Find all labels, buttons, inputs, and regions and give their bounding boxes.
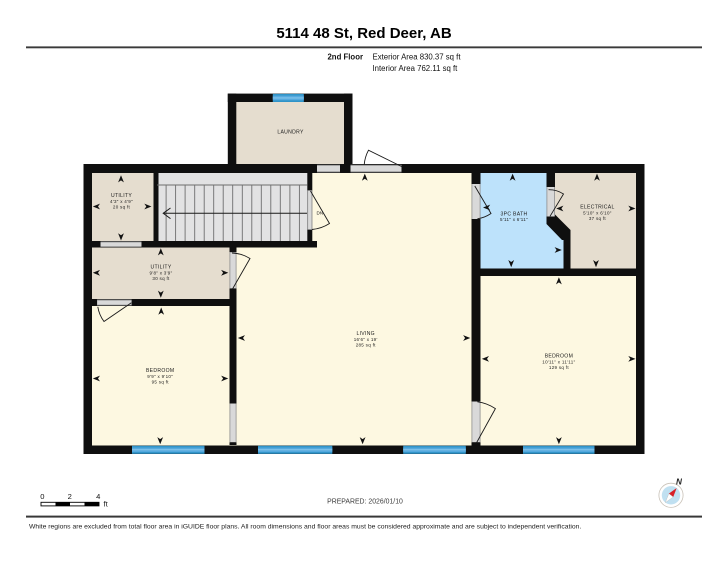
svg-text:37 sq ft: 37 sq ft [589, 216, 607, 221]
svg-text:5114 48 St, Red Deer, AB: 5114 48 St, Red Deer, AB [276, 25, 452, 42]
svg-text:4: 4 [96, 492, 100, 501]
svg-text:DN: DN [316, 211, 323, 216]
svg-text:2: 2 [68, 492, 72, 501]
svg-text:0: 0 [40, 492, 44, 501]
svg-text:5'10" x 6'10": 5'10" x 6'10" [583, 210, 612, 215]
svg-text:5'11" x 6'11": 5'11" x 6'11" [500, 217, 528, 222]
svg-text:Exterior Area 830.37 sq ft: Exterior Area 830.37 sq ft [373, 53, 462, 62]
svg-text:285 sq ft: 285 sq ft [356, 343, 376, 348]
svg-text:30 sq ft: 30 sq ft [152, 276, 170, 281]
svg-text:10'11" x 11'11": 10'11" x 11'11" [542, 359, 575, 364]
svg-text:95 sq ft: 95 sq ft [152, 380, 170, 385]
svg-text:White regions are excluded fro: White regions are excluded from total fl… [29, 524, 581, 531]
svg-text:PREPARED: 2026/01/10: PREPARED: 2026/01/10 [327, 499, 403, 506]
svg-text:20 sq ft: 20 sq ft [113, 205, 131, 210]
svg-text:16'6" x 19': 16'6" x 19' [354, 337, 378, 342]
svg-text:LAUNDRY: LAUNDRY [277, 130, 304, 136]
svg-text:4'3" x 4'9": 4'3" x 4'9" [110, 199, 133, 204]
svg-text:Interior Area 762.11 sq ft: Interior Area 762.11 sq ft [373, 64, 459, 73]
svg-text:2nd Floor: 2nd Floor [327, 53, 363, 62]
svg-text:9'9" x 9'10": 9'9" x 9'10" [147, 374, 173, 379]
svg-text:129 sq ft: 129 sq ft [549, 365, 569, 370]
svg-text:9'8" x 3'9": 9'8" x 3'9" [150, 270, 173, 275]
